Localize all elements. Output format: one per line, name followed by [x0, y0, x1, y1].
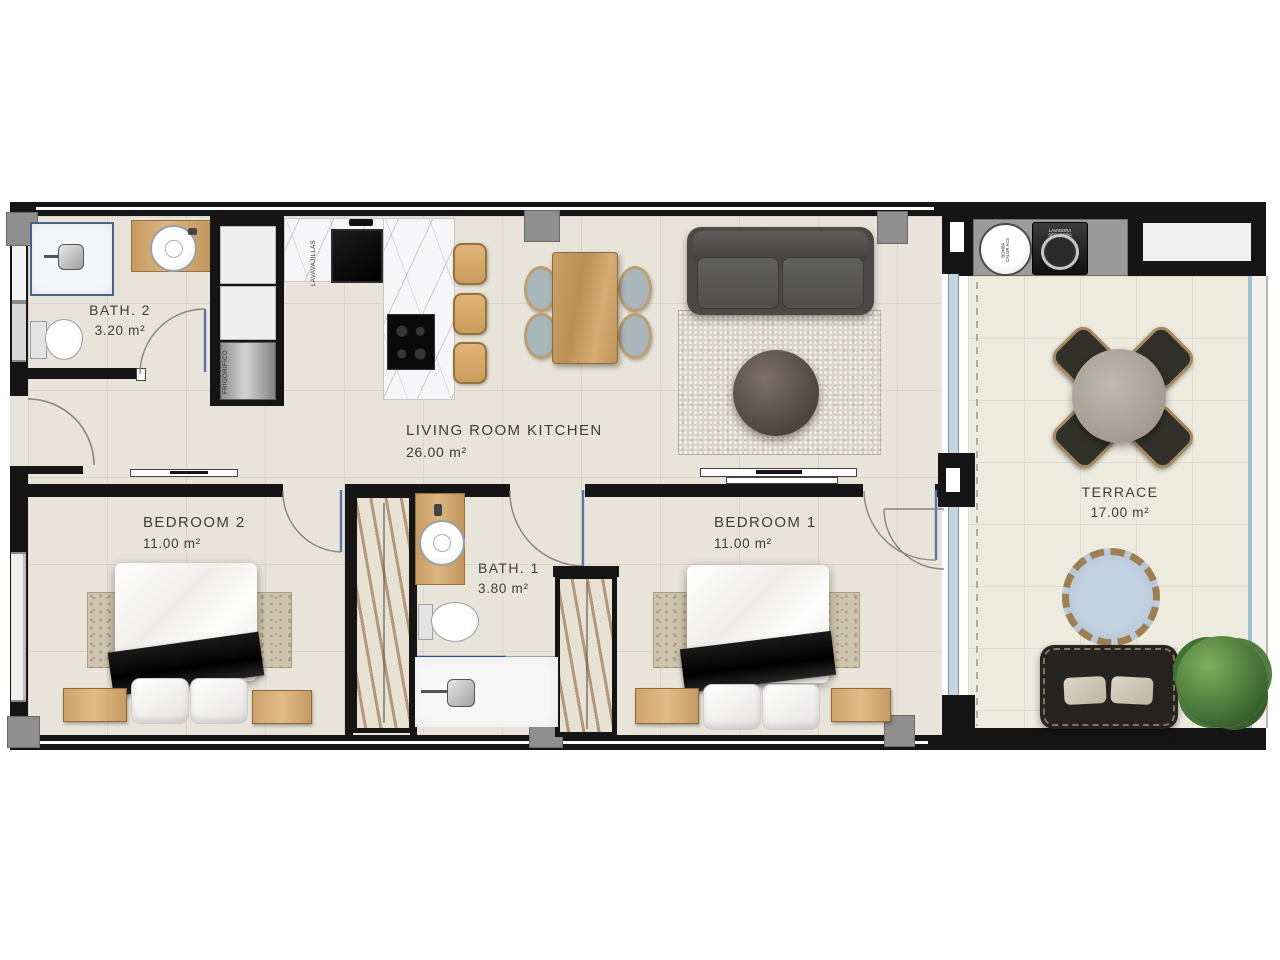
glass-pane-lower [948, 507, 959, 695]
coffee-table [733, 350, 819, 436]
sofa-cushion-right [782, 257, 864, 309]
terrace-table [1072, 349, 1166, 443]
dining-chair-3 [618, 266, 652, 312]
sofa-cushion-left [697, 257, 779, 309]
wall-terrace-bottom [958, 728, 1266, 750]
bath1-sink-icon [419, 520, 465, 566]
wardrobe-bedroom1 [555, 574, 617, 737]
terrace-area: 17.00 m² [1064, 505, 1176, 520]
heat-pump-label: BOMBA CALOR ACS [1001, 235, 1010, 264]
plant-icon [1176, 636, 1268, 728]
pillar-top-right [877, 211, 908, 244]
label-bedroom1: BEDROOM 1 11.00 m² [714, 514, 817, 551]
bath1-shower-head-icon [447, 679, 475, 707]
washer-door [1041, 234, 1079, 270]
floor-plan: FRIGORIFICO LAVAVAJILLAS [0, 0, 1280, 960]
wardrobe-rod [586, 582, 588, 729]
bedroom2-pillow-right [190, 678, 248, 724]
bedroom2-area: 11.00 m² [143, 536, 246, 551]
bath1-sink-drain [433, 534, 451, 552]
glass-wall-top-window [950, 222, 964, 252]
heat-pump-icon: BOMBA CALOR ACS [979, 223, 1032, 276]
pillar-bottom-left [7, 716, 40, 748]
wall-divider-seg1 [28, 484, 283, 497]
terrace-name: TERRACE [1064, 484, 1176, 500]
bath2-area: 3.20 m² [74, 323, 166, 338]
outdoor-sofa-pillow-right [1110, 676, 1153, 705]
sofa [687, 227, 874, 315]
glass-pane-upper [948, 274, 959, 454]
dining-table [552, 252, 618, 364]
kitchen-tall-cabinet-1 [220, 226, 276, 284]
bedroom1-area: 11.00 m² [714, 536, 817, 551]
dining-chair-4 [618, 313, 652, 359]
bar-stool-1 [453, 243, 487, 285]
living-area: 26.00 m² [406, 444, 603, 460]
washer-dryer-icon: LAVADORA SECADORA [1032, 222, 1088, 275]
terrace-top-window [1143, 223, 1251, 261]
entrance-door-leaf [10, 466, 83, 474]
outdoor-sofa [1040, 645, 1178, 729]
slider-symbol-bedroom1-b [726, 477, 838, 484]
slider-symbol-bedroom1-a-dash [756, 470, 802, 474]
glass-wall-bottom-post [942, 695, 975, 740]
bar-stool-2 [453, 293, 487, 335]
outdoor-sofa-pillow-left [1063, 676, 1106, 705]
wardrobe-bedroom2 [352, 493, 414, 733]
kitchen-tall-cabinet-2 [220, 286, 276, 340]
bath1-shower-arm [421, 690, 449, 693]
glass-wall-pillar-window [946, 468, 960, 492]
fridge-label: FRIGORIFICO [222, 350, 229, 394]
label-bath1: BATH. 1 3.80 m² [478, 560, 540, 596]
slider-symbol-bedroom2-dash [170, 471, 208, 474]
wardrobe-rod [383, 503, 385, 724]
bath1-name: BATH. 1 [478, 560, 540, 576]
cooktop-icon [387, 314, 435, 370]
bath1-faucet-icon [434, 504, 442, 516]
label-terrace: TERRACE 17.00 m² [1064, 484, 1176, 520]
label-bath2: BATH. 2 3.20 m² [74, 302, 166, 338]
bath2-door-jamb [136, 368, 146, 381]
bath2-shower-head-icon [58, 244, 84, 270]
bath2-faucet-icon [188, 228, 197, 235]
bath1-area: 3.80 m² [478, 581, 540, 596]
bedroom2-pillow-left [131, 678, 189, 724]
bedroom2-name: BEDROOM 2 [143, 514, 246, 531]
bedroom1-pillow-left [703, 684, 761, 730]
wall-bottom-inner-line [40, 741, 928, 744]
bedroom1-name: BEDROOM 1 [714, 514, 817, 531]
bedroom1-pillow-right [762, 684, 820, 730]
wall-divider-seg3 [585, 484, 863, 497]
pillar-top-mid [524, 210, 560, 242]
dishwasher-label: LAVAVAJILLAS [310, 240, 317, 286]
kitchen-sink-icon [331, 229, 383, 283]
kitchen-faucet-icon [349, 219, 373, 226]
label-bedroom2: BEDROOM 2 11.00 m² [143, 514, 246, 551]
bath2-sink-drain [164, 239, 182, 257]
label-living-kitchen: LIVING ROOM KITCHEN 26.00 m² [406, 422, 603, 460]
bedroom2-nightstand-right [252, 690, 312, 724]
wall-top-inner-line [36, 207, 934, 210]
bedroom1-nightstand-left [635, 688, 699, 724]
bedroom1-nightstand-right [831, 688, 891, 722]
bedroom2-nightstand-left [63, 688, 127, 722]
living-name: LIVING ROOM KITCHEN [406, 422, 603, 439]
wall-bath2-bottom [28, 368, 136, 379]
bath2-name: BATH. 2 [74, 302, 166, 318]
kitchen-island [383, 218, 455, 400]
bar-stool-3 [453, 342, 487, 384]
terrace-round-rug [1062, 548, 1160, 646]
window-bath2-lower [12, 302, 26, 362]
window-bath2-upper [12, 242, 26, 302]
entrance-door-opening [10, 396, 28, 466]
window-bedroom2 [11, 552, 26, 702]
